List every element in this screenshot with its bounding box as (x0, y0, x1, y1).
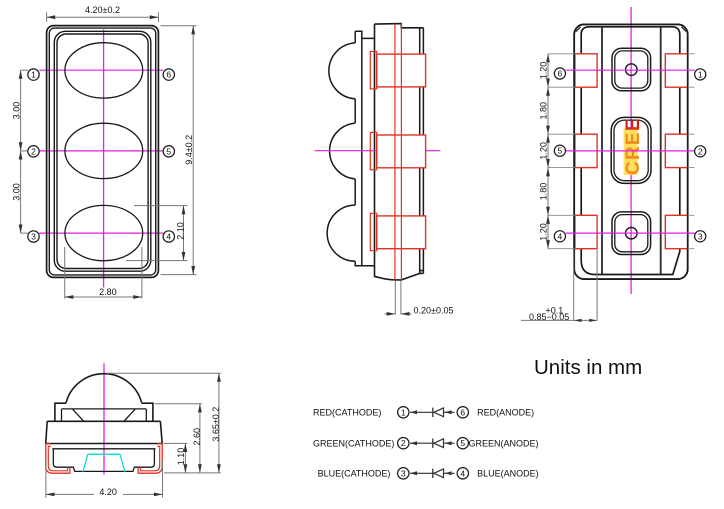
svg-text:6: 6 (166, 70, 171, 80)
svg-text:BLUE(CATHODE): BLUE(CATHODE) (318, 468, 391, 478)
svg-text:4: 4 (558, 231, 563, 241)
svg-text:3.65±0.2: 3.65±0.2 (211, 407, 221, 442)
svg-text:4: 4 (166, 232, 171, 242)
svg-text:3: 3 (31, 232, 36, 242)
svg-text:1.20: 1.20 (538, 62, 548, 80)
svg-text:5: 5 (166, 146, 171, 156)
svg-text:CREE: CREE (623, 119, 644, 176)
svg-text:6: 6 (460, 407, 465, 417)
svg-text:3.00: 3.00 (12, 183, 22, 201)
svg-text:1.20: 1.20 (538, 223, 548, 241)
svg-text:1: 1 (698, 69, 703, 79)
svg-text:6: 6 (558, 69, 563, 79)
svg-text:GREEN(ANODE): GREEN(ANODE) (469, 438, 539, 448)
svg-text:BLUE(ANODE): BLUE(ANODE) (477, 468, 539, 478)
svg-text:4: 4 (460, 468, 465, 478)
svg-text:GREEN(CATHODE): GREEN(CATHODE) (313, 438, 394, 448)
svg-text:4.20±0.2: 4.20±0.2 (85, 5, 120, 15)
svg-text:2: 2 (31, 146, 36, 156)
svg-text:3: 3 (401, 468, 406, 478)
svg-text:1.80: 1.80 (538, 102, 548, 120)
svg-text:0.85−0.05: 0.85−0.05 (529, 312, 569, 322)
svg-text:Units in mm: Units in mm (534, 356, 642, 379)
svg-text:5: 5 (558, 146, 563, 156)
svg-text:2: 2 (401, 438, 406, 448)
svg-text:1.80: 1.80 (538, 183, 548, 201)
svg-text:2.80: 2.80 (99, 287, 117, 297)
svg-text:2.60: 2.60 (192, 428, 202, 446)
svg-text:1.10: 1.10 (176, 448, 186, 466)
svg-text:3: 3 (698, 231, 703, 241)
svg-text:1.20: 1.20 (538, 142, 548, 160)
svg-text:5: 5 (460, 438, 465, 448)
svg-text:2: 2 (698, 146, 703, 156)
svg-text:4.20: 4.20 (99, 487, 117, 497)
svg-text:1: 1 (31, 70, 36, 80)
svg-text:9.4±0.2: 9.4±0.2 (184, 135, 194, 165)
svg-text:2.10: 2.10 (176, 222, 186, 240)
svg-text:RED(ANODE): RED(ANODE) (477, 407, 534, 417)
svg-text:1: 1 (401, 407, 406, 417)
svg-text:RED(CATHODE): RED(CATHODE) (313, 407, 381, 417)
svg-text:0.20±0.05: 0.20±0.05 (414, 305, 454, 315)
svg-text:3.00: 3.00 (12, 102, 22, 120)
